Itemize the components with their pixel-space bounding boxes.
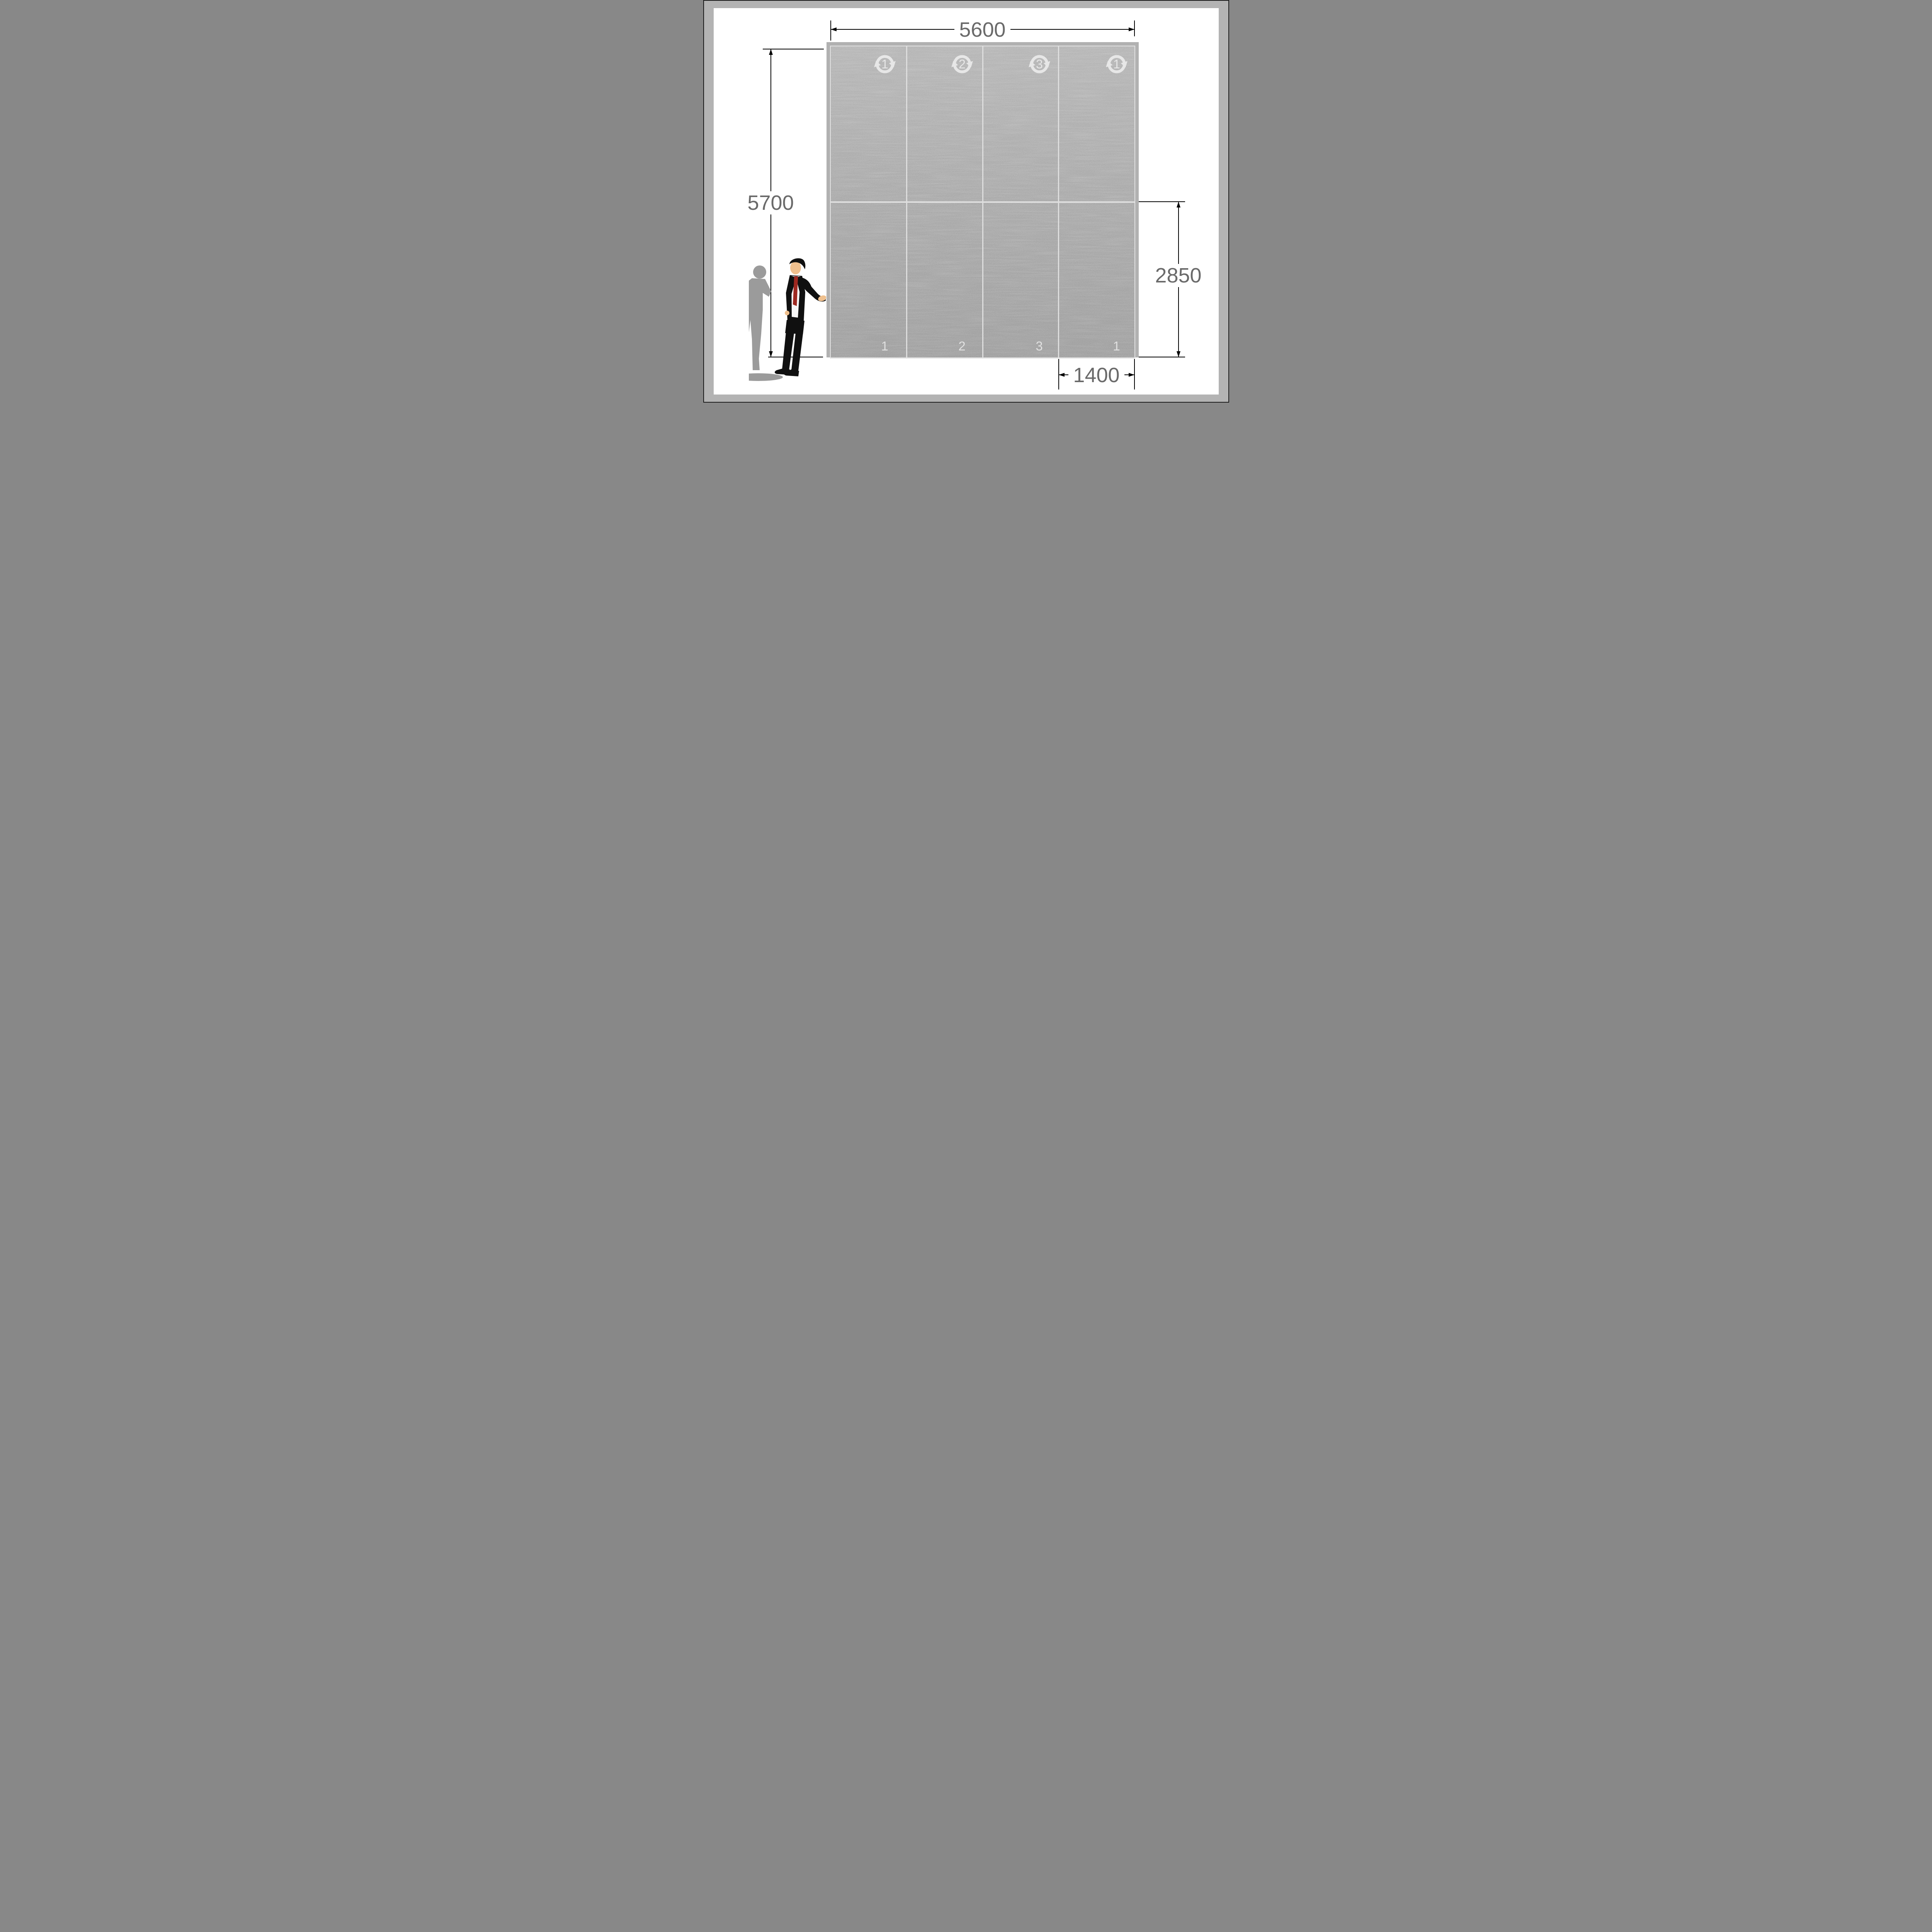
panel-number-label: 2 [947, 338, 978, 354]
rotation-icon: 2 [950, 52, 974, 76]
dim-panel-label: 1400 [1059, 365, 1134, 386]
presenter-person [749, 255, 826, 383]
rotation-icon-number: 2 [959, 57, 966, 71]
rotation-icon-number: 1 [1113, 57, 1120, 71]
diagram-canvas: 5600 5700 2850 1400 [703, 0, 1229, 403]
dim-lower-arrow-down-icon [1177, 351, 1180, 357]
panel-number-label: 1 [869, 338, 900, 354]
panel-number-label: 3 [1024, 338, 1055, 354]
dim-height-value: 5700 [743, 191, 798, 214]
rotation-icon: 1 [873, 52, 897, 76]
panel-number-label: 1 [1101, 338, 1132, 354]
panel-joint-horizontal [831, 201, 1134, 203]
person-head [790, 261, 801, 274]
dim-width-label: 5600 [831, 19, 1134, 40]
dim-lower-value: 2850 [1150, 264, 1206, 287]
rotation-icon-number: 3 [1036, 57, 1043, 71]
rotation-icon-number: 1 [881, 57, 888, 71]
person-pocket-hand [785, 311, 789, 315]
dim-height-label: 5700 [736, 192, 806, 213]
dim-lower-arrow-up-icon [1177, 202, 1180, 207]
dim-lower-label: 2850 [1144, 265, 1213, 286]
rotation-icon: 1 [1105, 52, 1129, 76]
person-shadow [749, 265, 783, 381]
person-figure [774, 258, 826, 376]
dim-height-arrow-up-icon [769, 49, 773, 55]
dim-panel-value: 1400 [1068, 364, 1124, 387]
rotation-icon: 3 [1027, 52, 1051, 76]
dim-width-value: 5600 [954, 18, 1010, 41]
concrete-wall-surface: 1 2 3 [831, 46, 1134, 357]
person-tie-knot [794, 276, 798, 279]
